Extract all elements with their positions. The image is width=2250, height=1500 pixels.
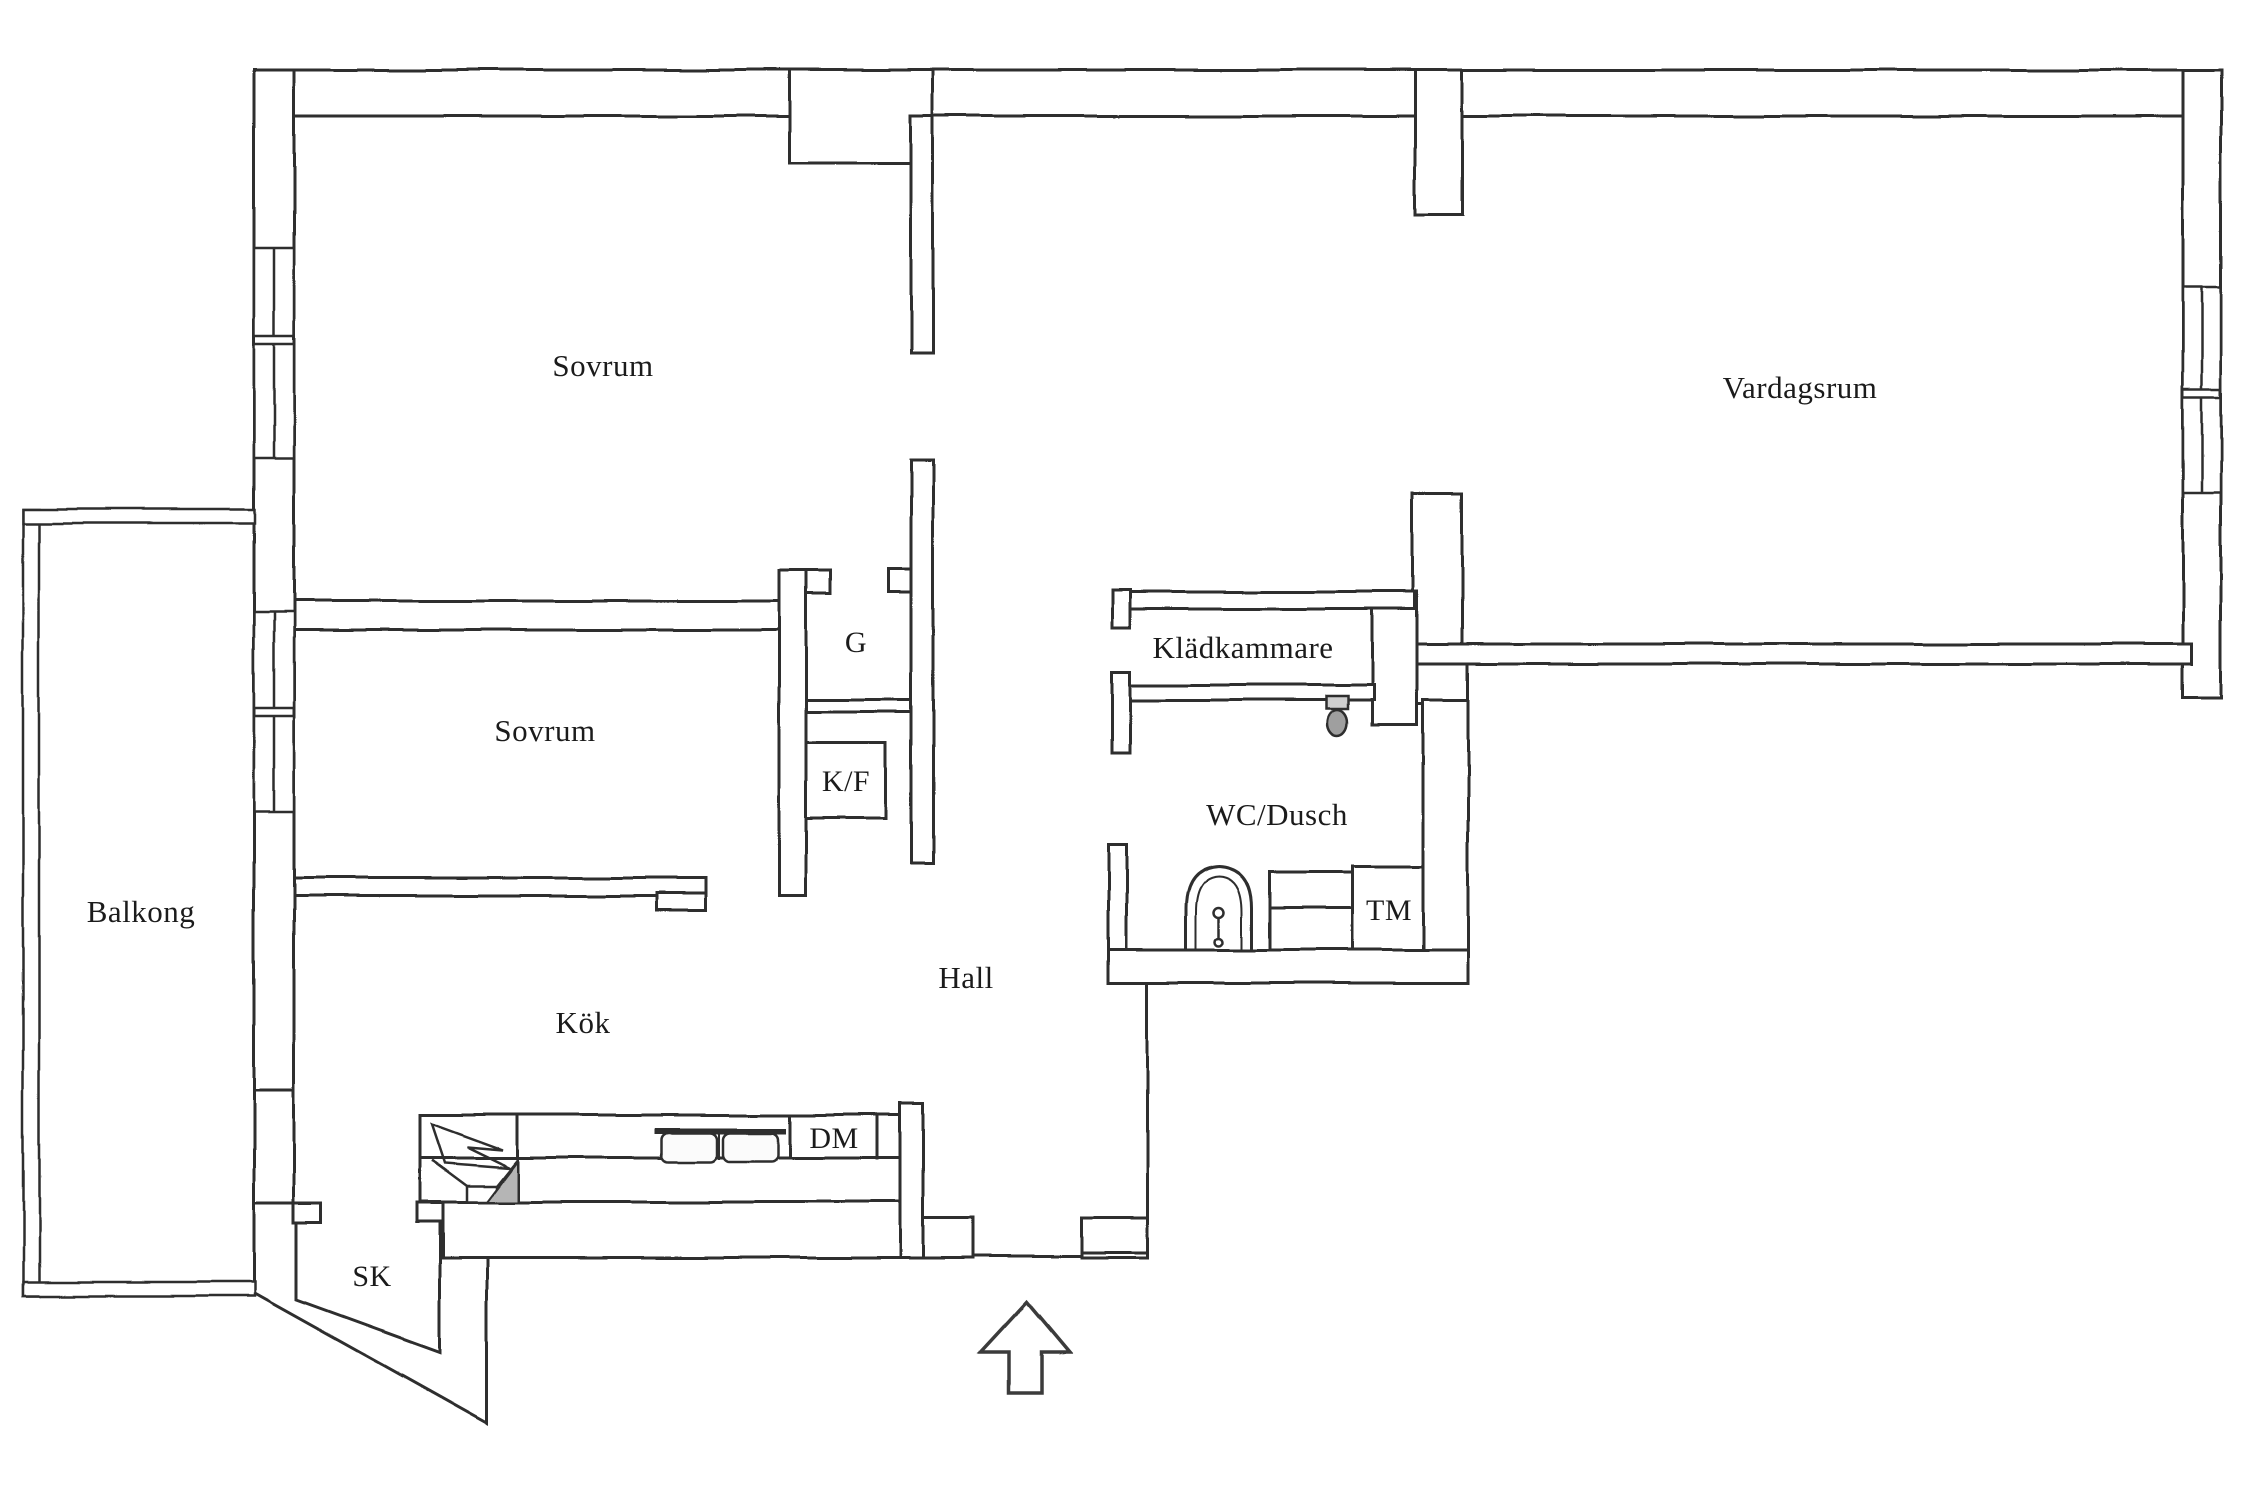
wall-top-notch [1415, 70, 1462, 215]
window-icon [254, 248, 294, 336]
window-icon [2183, 287, 2221, 389]
wall-lines-group [254, 593, 1147, 1423]
floor-plan-page: Sovrum Vardagsrum Sovrum Balkong Klädkam… [0, 0, 2250, 1500]
floor-plan-drawing [0, 0, 2250, 1500]
unit-label-tm: TM [1366, 894, 1412, 928]
window-icon [2183, 397, 2221, 493]
room-label-kok: Kök [556, 1005, 611, 1041]
wall-wc-right [1423, 700, 1468, 983]
room-label-sovrum-1: Sovrum [552, 348, 653, 384]
wall-kladkammare-jamb-upper [1112, 590, 1130, 628]
wall-kladkammare-jamb-lower [1112, 672, 1130, 752]
entrance-arrow-icon [981, 1302, 1069, 1392]
wall-top [254, 70, 2218, 116]
window-icon [254, 344, 294, 458]
wall-sk-left-jamb [294, 1203, 322, 1222]
wall-sovrum2-bottom [294, 878, 706, 896]
wall-sovrum2-right [779, 570, 806, 896]
wall-kitchen-bottom [443, 1202, 900, 1258]
window-icon [254, 612, 294, 708]
unit-label-g: G [845, 626, 867, 660]
wall-vardagsrum-left [1413, 493, 1462, 653]
wall-kitchen-entry-stub [900, 1103, 923, 1258]
wall-hall-corner-line [1082, 983, 1147, 1253]
shower-bench-icon [1270, 872, 1352, 950]
wall-kladkammare-right-block [1372, 592, 1417, 725]
wall-vardagsrum-bottom [1413, 644, 2192, 664]
wall-wc-bottom [1108, 950, 1468, 983]
unit-label-kf: K/F [822, 765, 870, 799]
wall-kladkammare-top [1112, 592, 1415, 609]
room-label-wc-dusch: WC/Dusch [1206, 797, 1348, 833]
wall-sovrum2-bottom-step [657, 893, 706, 910]
wall-g-bottom [806, 700, 911, 712]
wall-sk-right-jamb [417, 1203, 443, 1222]
wall-corner-block [1413, 664, 1468, 704]
wall-wc-left-stub [1108, 845, 1126, 950]
wall-entry-left-jamb [923, 1218, 973, 1258]
wall-g-door-jamb [888, 570, 911, 593]
room-label-sk: SK [352, 1260, 391, 1294]
unit-label-dm: DM [809, 1122, 858, 1156]
room-label-sovrum-2: Sovrum [494, 713, 595, 749]
washbasin-icon [1186, 866, 1252, 950]
room-label-hall: Hall [938, 960, 993, 996]
wall-sovrum1-right-lower [911, 460, 933, 863]
room-label-vardagsrum: Vardagsrum [1723, 370, 1878, 406]
toilet-icon [1326, 696, 1348, 736]
window-icon [254, 716, 294, 812]
wall-between-bedrooms [294, 601, 779, 630]
room-label-balkong: Balkong [87, 894, 196, 930]
wall-sovrum1-right-upper [911, 116, 933, 353]
room-label-kladkammare: Klädkammare [1152, 630, 1333, 666]
